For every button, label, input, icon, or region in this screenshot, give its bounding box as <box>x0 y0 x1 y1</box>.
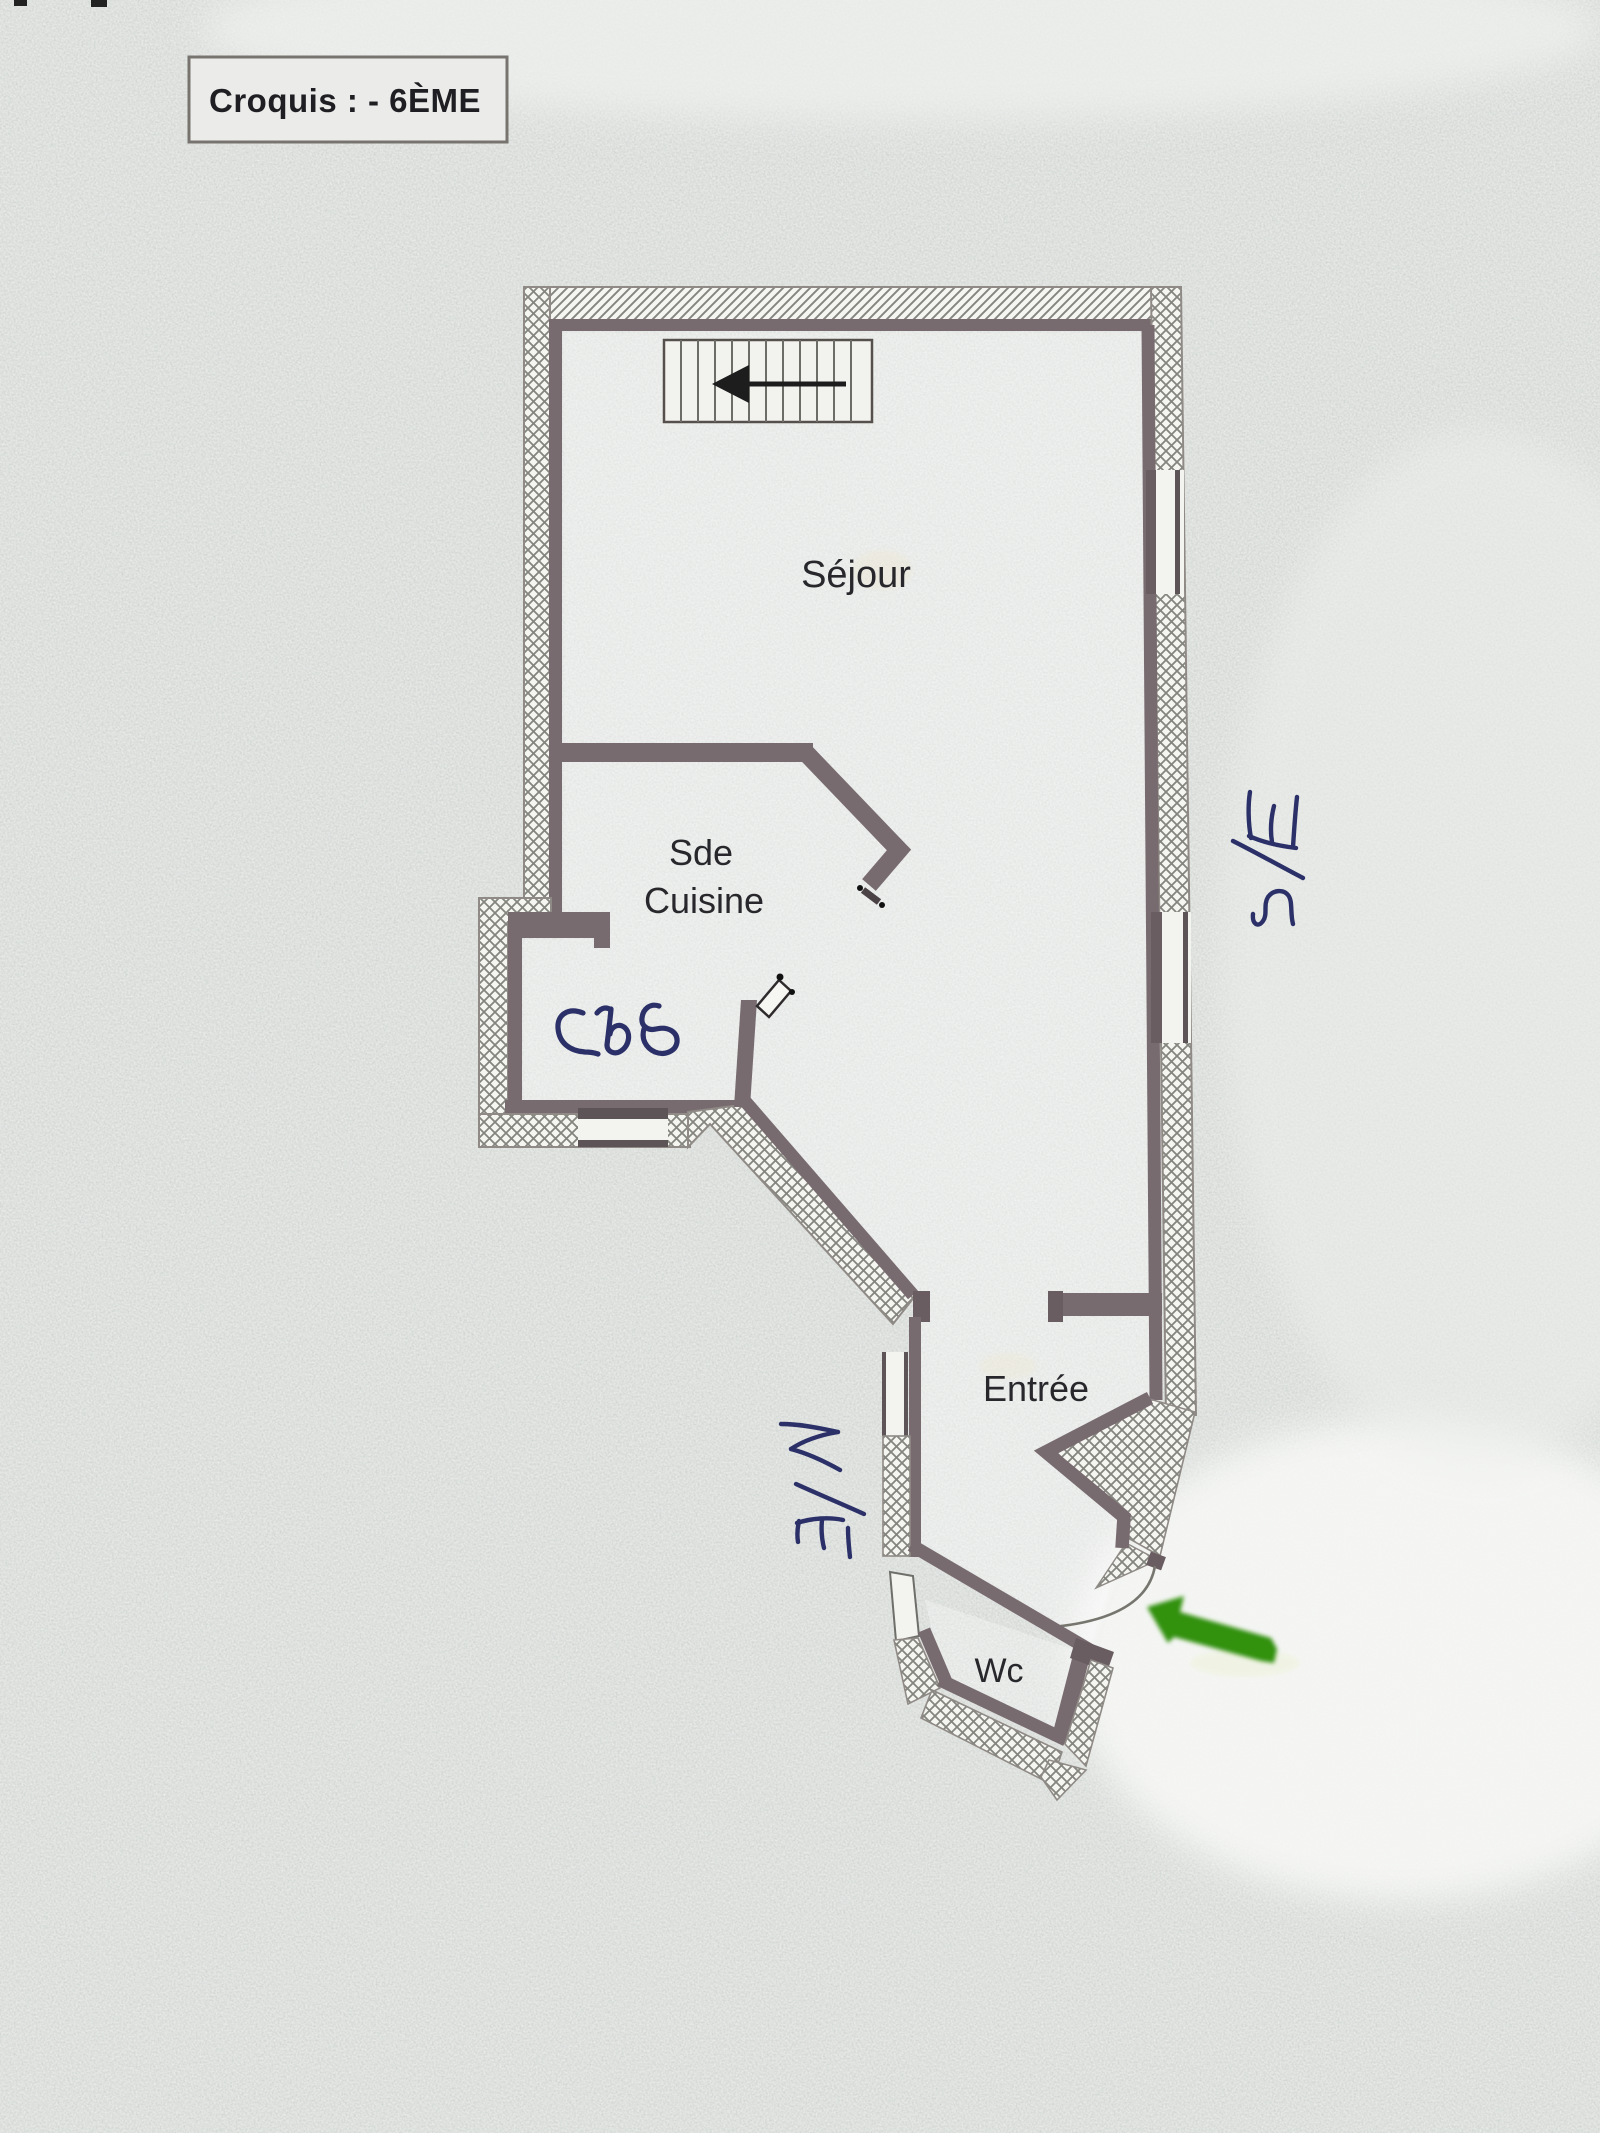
svg-text:Séjour: Séjour <box>801 554 911 596</box>
svg-text:Entrée: Entrée <box>983 1368 1089 1409</box>
svg-text:Cuisine: Cuisine <box>644 880 764 921</box>
svg-text:Croquis : - 6ÈME: Croquis : - 6ÈME <box>209 82 481 119</box>
svg-text:Sde: Sde <box>669 832 733 873</box>
svg-text:Wc: Wc <box>974 1652 1023 1690</box>
